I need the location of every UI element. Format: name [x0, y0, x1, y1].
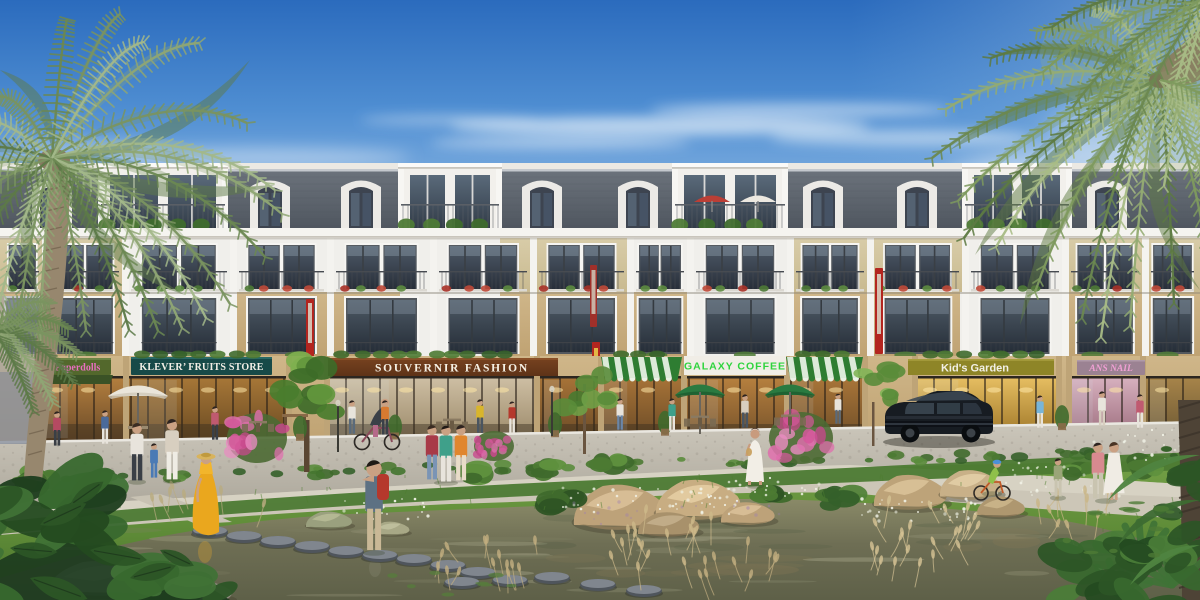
svg-text:SOUVERNIR FASHION: SOUVERNIR FASHION [375, 363, 529, 375]
svg-text:KLEVER’ FRUITS STORE: KLEVER’ FRUITS STORE [139, 362, 263, 373]
svg-text:GALAXY COFFEE: GALAXY COFFEE [684, 361, 786, 373]
svg-text:ANS NAIL: ANS NAIL [1088, 364, 1133, 374]
svg-text:Kid's Garden: Kid's Garden [941, 363, 1009, 375]
